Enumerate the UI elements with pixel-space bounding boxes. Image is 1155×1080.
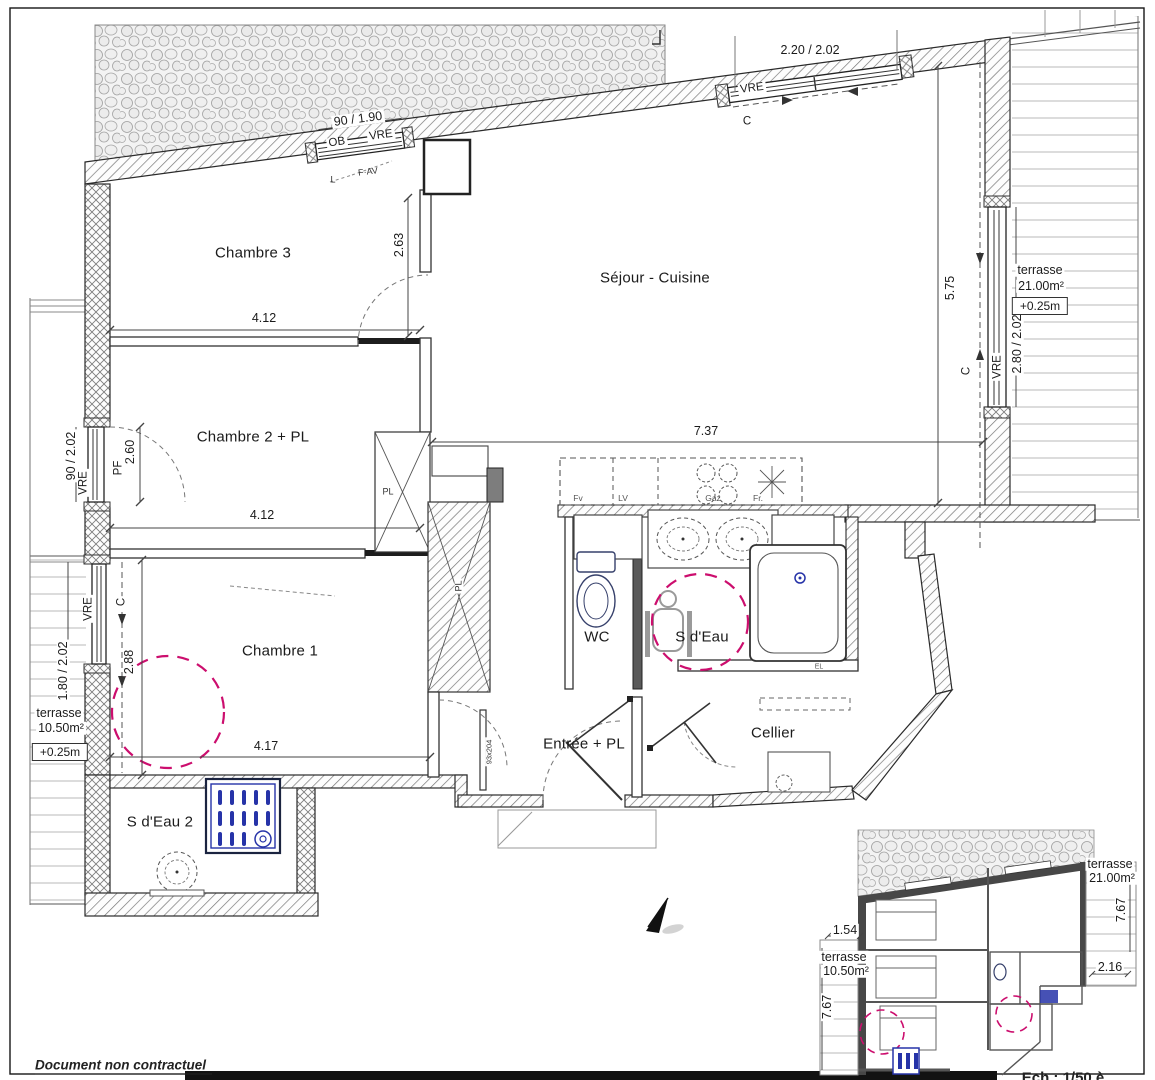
room-label-entree: Entrée + PL xyxy=(543,737,625,752)
terrace-right-name: terrasse xyxy=(1015,264,1064,277)
terrace-left xyxy=(30,298,86,905)
room-label-chambre2: Chambre 2 + PL xyxy=(197,430,309,445)
room-label-chambre3: Chambre 3 xyxy=(215,246,291,261)
dim-entry-door-size: 93x204 xyxy=(485,738,493,767)
kitchen-counter xyxy=(560,458,802,505)
room-label-chambre1: Chambre 1 xyxy=(242,644,318,659)
dim-chambre3-width: 4.12 xyxy=(250,312,278,325)
room-label-sejour-cuisine: Séjour - Cuisine xyxy=(600,271,710,286)
right-window-track-c: C xyxy=(961,365,973,377)
inset-terrace-left-area: 10.50m² xyxy=(821,965,871,978)
dim-sejour-width: 7.37 xyxy=(692,425,720,438)
right-window-tag-vre: VRE xyxy=(992,353,1004,381)
inset-terrace-right-width: 2.16 xyxy=(1096,961,1124,974)
bay-window-track-c: C xyxy=(743,116,751,128)
dim-sejour-depth: 5.75 xyxy=(944,274,957,302)
room-label-salle-eau: S d'Eau xyxy=(675,630,728,645)
inset-terrace-left-depth: 7.67 xyxy=(821,993,834,1021)
kitchen-tag-dishwasher: LV xyxy=(618,494,628,503)
terrace-right-area: 21.00m² xyxy=(1016,280,1066,293)
dim-chambre1-depth: 2.88 xyxy=(123,648,136,676)
ob-window-tag-l: L xyxy=(330,176,335,185)
pf-window-tag-pf: PF xyxy=(113,459,125,478)
north-arrow-icon xyxy=(646,898,685,936)
inset-terrace-right-name: terrasse xyxy=(1085,858,1134,871)
pf-window-tag-vre: VRE xyxy=(78,469,90,497)
closet-label-pl1: PL xyxy=(380,488,395,497)
closet-label-pl2: PL xyxy=(455,578,464,593)
inset-terrace-right-depth: 7.67 xyxy=(1115,896,1128,924)
dim-chambre2-door: 2.60 xyxy=(124,438,137,466)
dim-chambre2-width: 4.12 xyxy=(248,509,276,522)
chambre1-window-track-c: C xyxy=(116,596,128,608)
bathroom-fixtures xyxy=(150,510,850,896)
kitchen-tag-oven: Fv xyxy=(573,494,582,503)
footer-scale: Ech : 1/50 è xyxy=(1022,1071,1105,1080)
right-window-dim: 2.80 / 2.02 xyxy=(1011,312,1024,375)
room-label-salle-eau2: S d'Eau 2 xyxy=(127,815,193,830)
floor-plan-canvas xyxy=(0,0,1155,1080)
inset-terrace-left-width: 1.54 xyxy=(831,924,859,937)
terrace-right-level: +0.25m xyxy=(1012,297,1068,315)
terrace-left-level: +0.25m xyxy=(32,743,88,761)
chambre1-window-tag-vre: VRE xyxy=(83,595,95,623)
inset-terrace-right-area: 21.00m² xyxy=(1087,872,1137,885)
terrace-left-area: 10.50m² xyxy=(36,722,86,735)
bay-window-dim: 2.20 / 2.02 xyxy=(778,44,841,57)
room-label-wc: WC xyxy=(584,630,609,645)
pf-window-dim: 90 / 2.02 xyxy=(65,430,78,483)
inset-terrace-left-name: terrasse xyxy=(819,951,868,964)
dim-chambre1-width: 4.17 xyxy=(252,740,280,753)
dim-chambre3-depth: 2.63 xyxy=(393,231,406,259)
tag-el: EL xyxy=(815,664,824,671)
footer-disclaimer: Document non contractuel xyxy=(35,1058,212,1075)
room-label-cellier: Cellier xyxy=(751,726,795,741)
kitchen-tag-hob: Gaz xyxy=(705,494,721,503)
floor-plan-page: 2.20 / 2.02 VRE C 90 / 1.90 OB VRE F·AV … xyxy=(0,0,1155,1080)
terrace-left-name: terrasse xyxy=(34,707,83,720)
kitchen-tag-fridge: Fr. xyxy=(753,494,763,503)
chambre1-window-dim: 1.80 / 2.02 xyxy=(57,639,70,702)
